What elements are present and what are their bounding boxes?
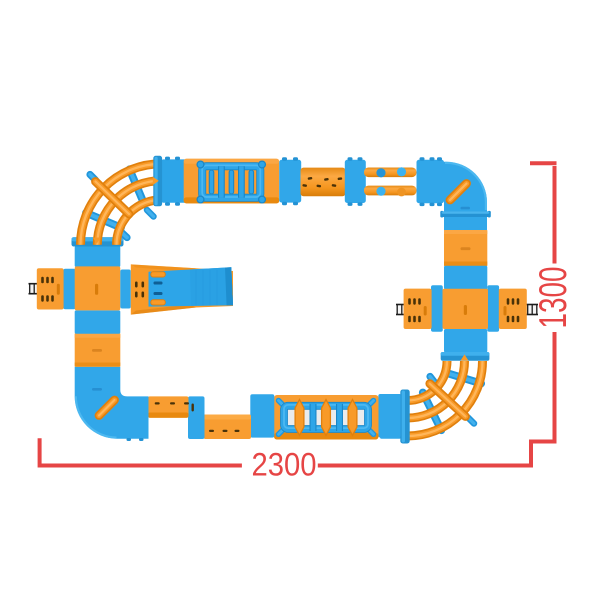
svg-text:1300: 1300 xyxy=(532,267,575,329)
svg-text:2300: 2300 xyxy=(252,447,317,483)
